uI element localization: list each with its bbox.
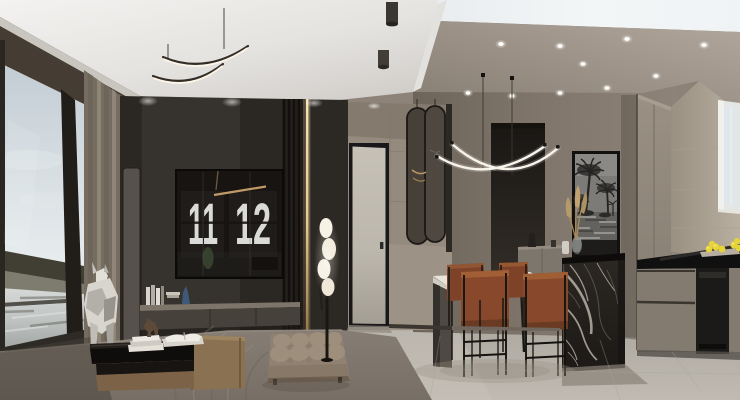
- svg-text:12: 12: [235, 192, 271, 257]
